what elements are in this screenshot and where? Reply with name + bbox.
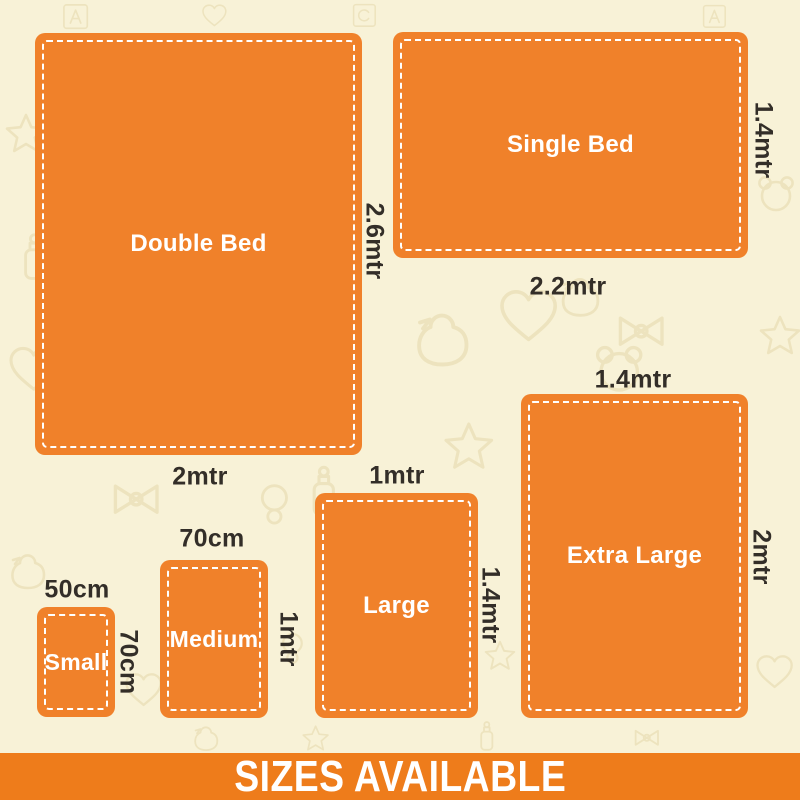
size-box-medium: Medium [160, 560, 268, 718]
size-name-large: Large [363, 592, 430, 620]
size-box-large: Large [315, 493, 478, 718]
sizes-infographic: Double Bed 2mtr 2.6mtr Single Bed 2.2mtr… [0, 0, 800, 800]
height-dimension-large: 1.4mtr [476, 567, 505, 644]
size-box-extra-large: Extra Large [521, 394, 748, 718]
size-name-double-bed: Double Bed [130, 230, 266, 258]
width-dimension-single-bed: 2.2mtr [530, 273, 607, 302]
footer-title: SIZES AVAILABLE [234, 752, 566, 800]
width-dimension-extra-large: 1.4mtr [595, 366, 672, 395]
size-box-double-bed: Double Bed [35, 33, 362, 455]
footer-bar: SIZES AVAILABLE [0, 753, 800, 800]
width-dimension-small: 50cm [44, 576, 109, 605]
size-box-single-bed: Single Bed [393, 32, 748, 258]
size-name-small: Small [45, 649, 108, 676]
width-dimension-large: 1mtr [369, 462, 424, 491]
height-dimension-medium: 1mtr [274, 611, 303, 666]
size-box-small: Small [37, 607, 115, 717]
width-dimension-double-bed: 2mtr [172, 463, 227, 492]
height-dimension-double-bed: 2.6mtr [360, 203, 389, 280]
height-dimension-extra-large: 2mtr [747, 529, 776, 584]
size-name-extra-large: Extra Large [567, 542, 702, 570]
size-name-medium: Medium [170, 626, 259, 653]
height-dimension-small: 70cm [114, 629, 143, 694]
size-name-single-bed: Single Bed [507, 131, 634, 159]
width-dimension-medium: 70cm [179, 525, 244, 554]
height-dimension-single-bed: 1.4mtr [749, 102, 778, 179]
